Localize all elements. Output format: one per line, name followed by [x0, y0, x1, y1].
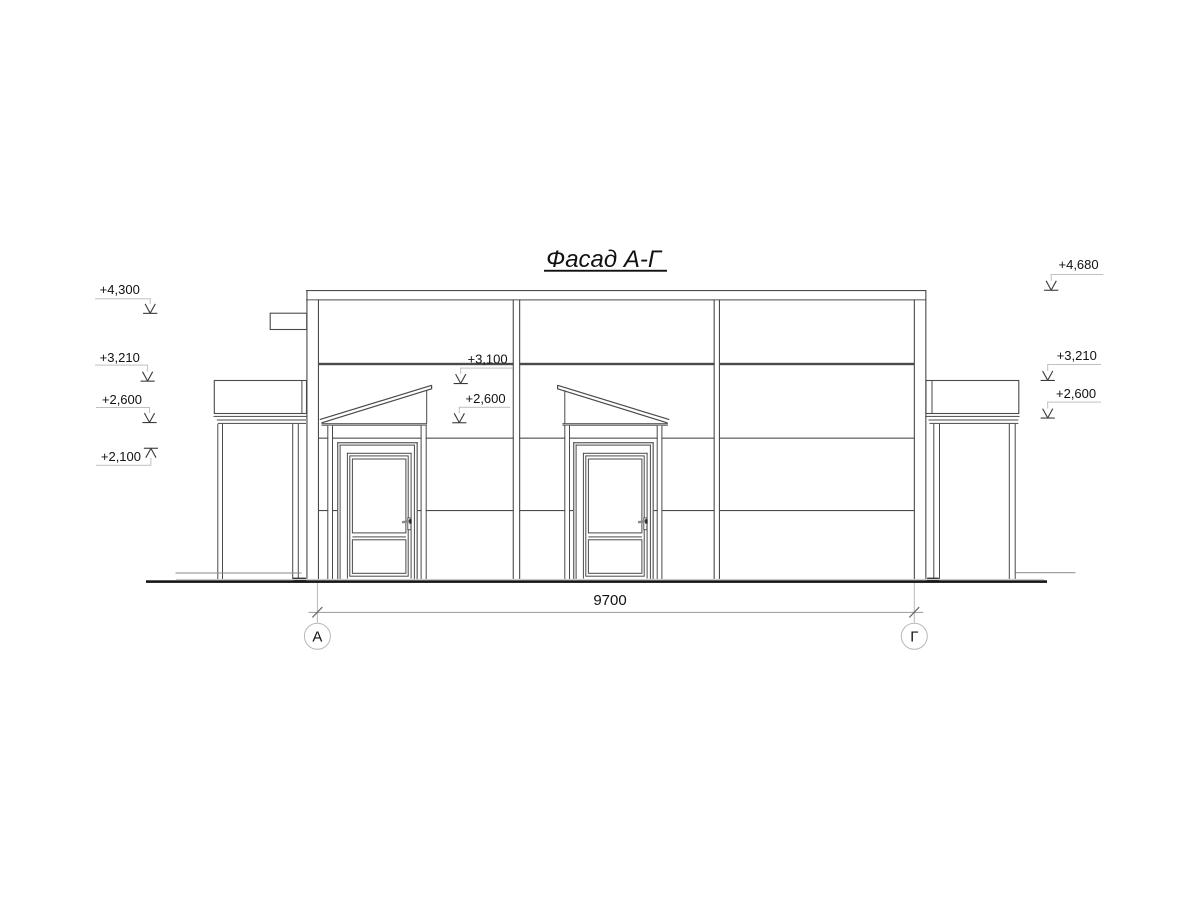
svg-text:+2,100: +2,100: [101, 449, 141, 464]
svg-text:Г: Г: [910, 629, 918, 646]
svg-text:А: А: [312, 629, 322, 646]
svg-text:+3,210: +3,210: [100, 350, 140, 365]
svg-text:+3,100: +3,100: [468, 352, 508, 367]
svg-text:+2,600: +2,600: [102, 392, 142, 407]
svg-text:+2,600: +2,600: [466, 391, 506, 406]
svg-text:+4,680: +4,680: [1059, 257, 1099, 272]
svg-text:9700: 9700: [593, 592, 626, 609]
svg-text:+3,210: +3,210: [1057, 348, 1097, 363]
svg-text:+2,600: +2,600: [1056, 386, 1096, 401]
svg-text:Фасад А-Г: Фасад А-Г: [546, 246, 663, 273]
svg-text:+4,300: +4,300: [100, 282, 140, 297]
